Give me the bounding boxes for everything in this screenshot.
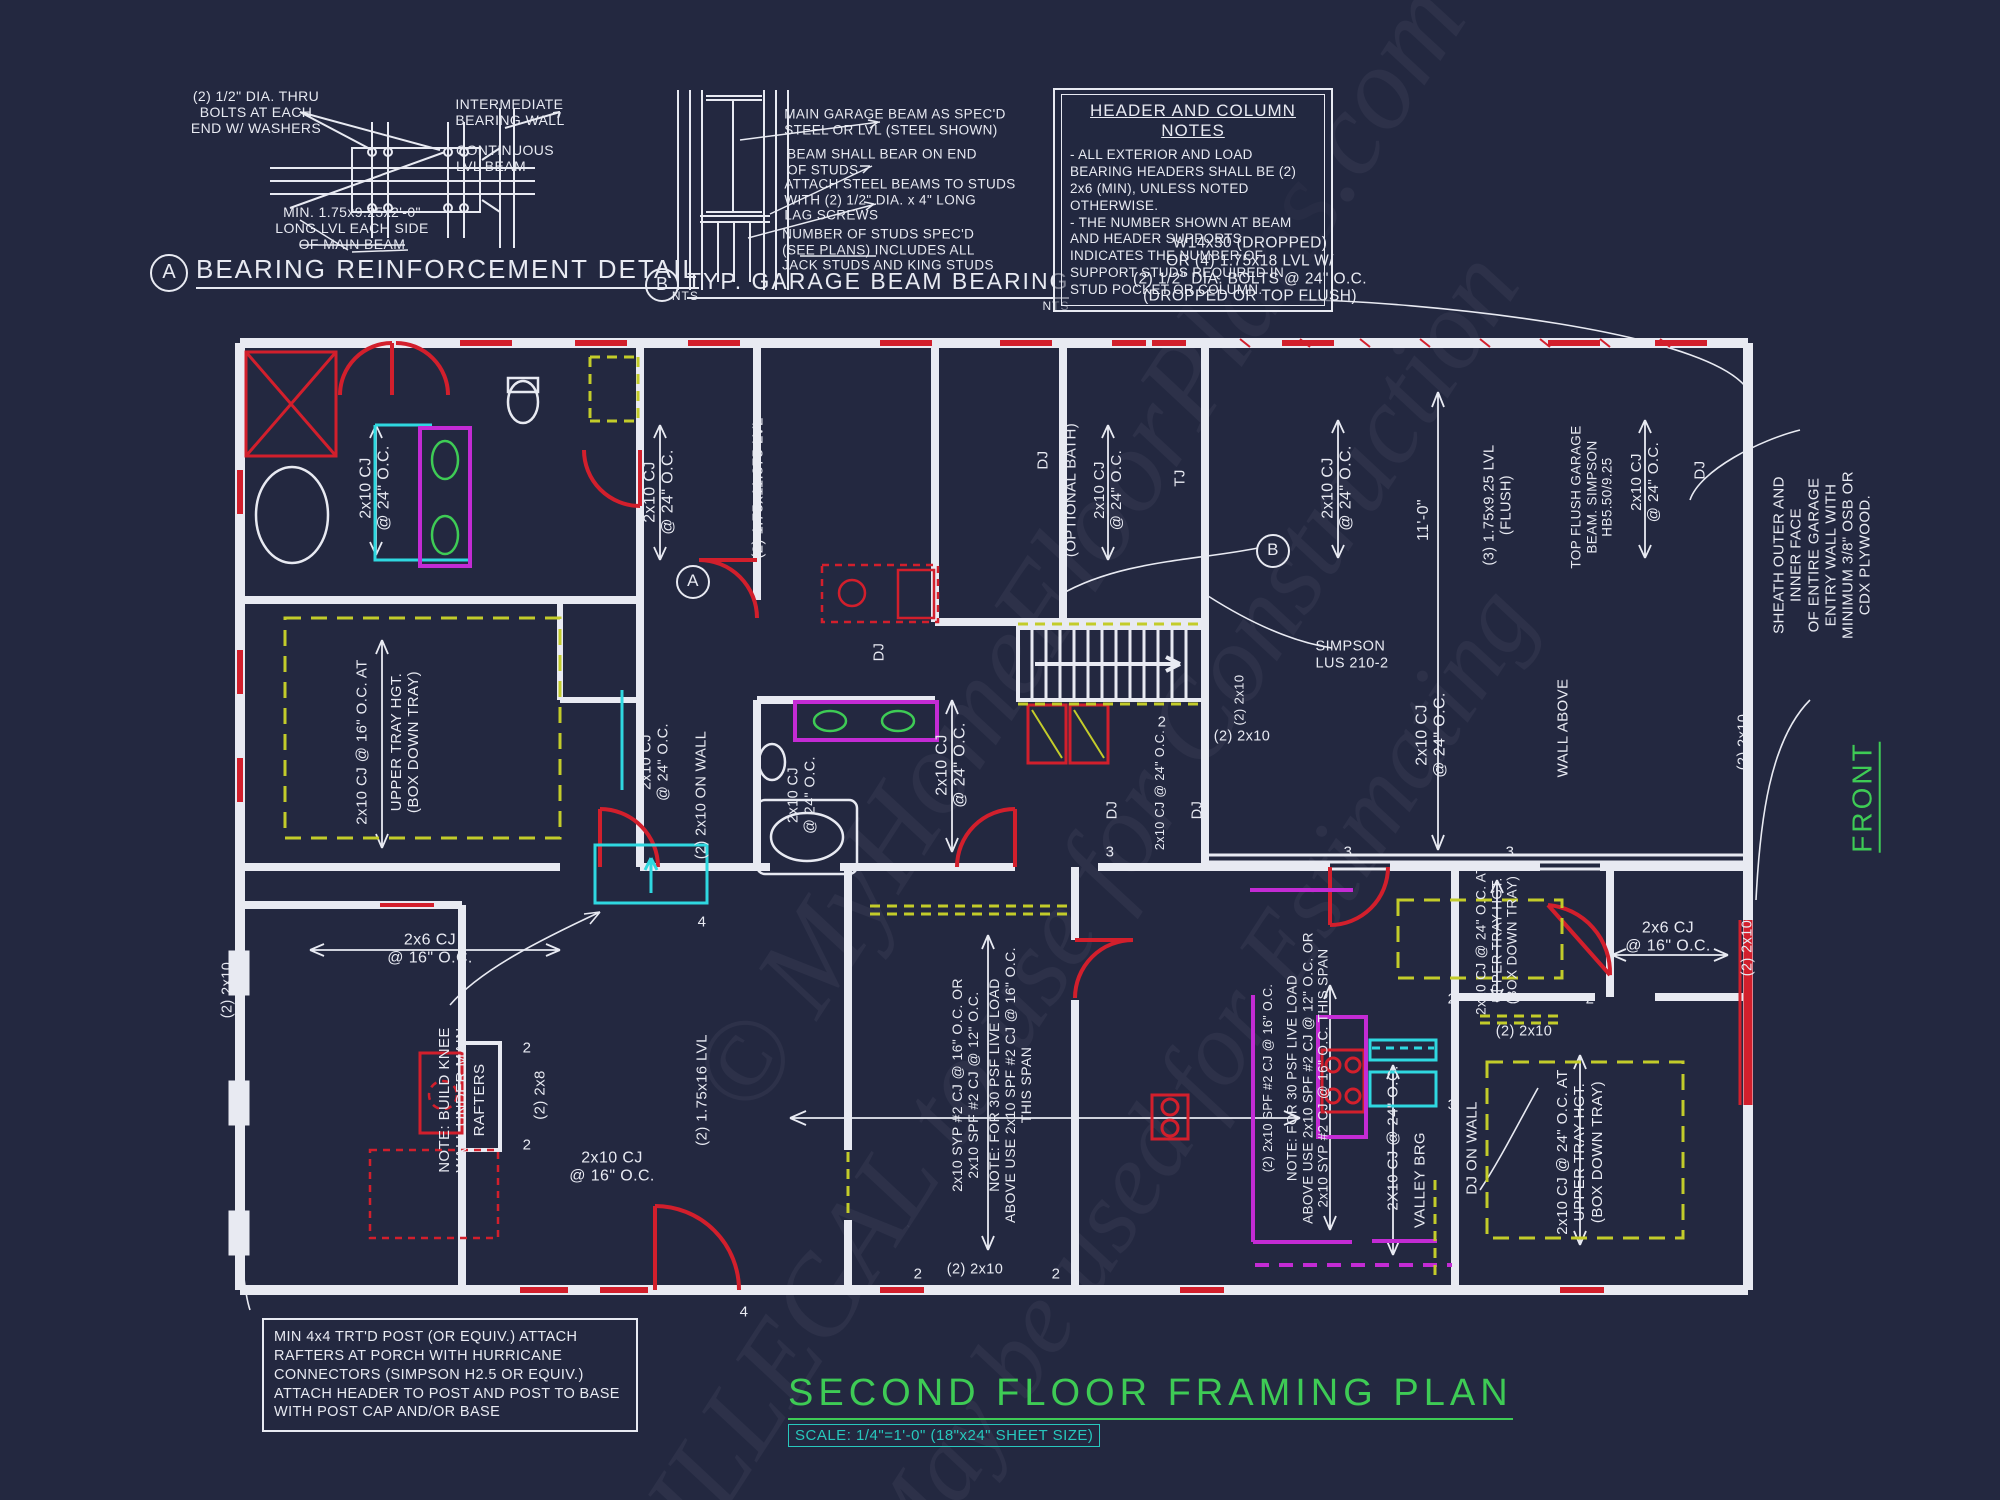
header-column-notes-title: HEADER AND COLUMN NOTES	[1070, 101, 1316, 141]
plan-label: INTERMEDIATE BEARING WALL	[455, 96, 564, 128]
callout-bubble: B	[1256, 534, 1290, 568]
plan-label: (2) 2x10	[1214, 729, 1270, 746]
plan-label: 2	[1448, 990, 1457, 1007]
plan-label: 2x10 CJ @ 24" O.C.	[638, 723, 671, 801]
plan-label: TJ	[1171, 469, 1188, 486]
plan-label: DJ	[1105, 801, 1122, 820]
plan-label: 3	[1106, 843, 1115, 860]
plan-label: (2) 1/2" DIA. THRU BOLTS AT EACH END W/ …	[191, 88, 321, 136]
plan-label: (2) 2x10	[1740, 920, 1757, 976]
detail-b-callout: B	[645, 268, 679, 302]
plan-label: DJ	[1190, 801, 1207, 820]
plan-label: 2	[914, 1265, 923, 1282]
plan-label: 4	[740, 1303, 749, 1320]
header-column-note-item: - ALL EXTERIOR AND LOAD BEARING HEADERS …	[1070, 147, 1316, 215]
plan-label: 2	[523, 1039, 532, 1056]
plan-label: 2	[1052, 1265, 1061, 1282]
callout-bubble: A	[676, 565, 710, 599]
plan-label: 3	[1344, 843, 1353, 860]
plan-label: 2	[523, 1136, 532, 1153]
porch-post-note: MIN 4x4 TRT'D POST (OR EQUIV.) ATTACH RA…	[262, 1318, 638, 1432]
plan-label: 2x10 CJ @ 24" O.C. AT UPPER TRAY HGT. (B…	[1554, 1069, 1606, 1234]
plan-label: (2) 1.75x16 LVL	[693, 1034, 710, 1146]
plan-label: NOTE: FOR 30 PSF LIVE LOAD ABOVE USE 2x1…	[986, 947, 1034, 1223]
plan-label: (3) 1.75x9.25 LVL (FLUSH)	[1481, 445, 1514, 566]
detail-a-title: A BEARING REINFORCEMENT DETAIL NTS	[150, 254, 699, 303]
plan-label: 4	[698, 913, 707, 930]
plan-label: 2x10 CJ @ 16" O.C.	[569, 1150, 655, 1187]
plan-label: UPPER TRAY HGT. (BOX DOWN TRAY)	[388, 671, 423, 813]
plan-label: DJ ON WALL	[1463, 1101, 1480, 1194]
plan-label: NOTE: BUILD KNEE WALL UNDER MAIN RAFTERS	[436, 1027, 488, 1173]
detail-b-scale: NTS	[687, 299, 1069, 313]
plan-label: 3	[1506, 843, 1515, 860]
plan-label: 3	[1448, 1096, 1457, 1113]
plan-label: 2X10 CJ @ 24" O.C.	[1384, 1065, 1401, 1210]
plan-label: 2x10 CJ @ 24" O.C.	[1153, 730, 1167, 850]
plan-label: VALLEY BRG	[1411, 1132, 1428, 1228]
plan-label: 2x10 CJ @ 24" O.C.	[642, 449, 679, 535]
plan-label: (2) 2x10	[947, 1262, 1003, 1279]
plan-label: 11'-0"	[1415, 499, 1433, 541]
plan-label: 2x10 CJ @ 24" O.C.	[358, 445, 395, 531]
plan-label: 2x10 CJ @ 24" O.C. AT UPPER TRAY HGT. (B…	[1474, 865, 1521, 1015]
plan-label: SIMPSON LUS 210-2	[1316, 638, 1389, 671]
plan-label: DJ	[872, 643, 889, 662]
detail-b-title: B TYP. GARAGE BEAM BEARING NTS	[645, 268, 1069, 313]
plan-label: NOTE: FOR 30 PSF LIVE LOAD ABOVE USE 2x1…	[1285, 932, 1332, 1224]
plan-label: DJ	[1034, 450, 1051, 469]
plan-label: WALL ABOVE	[1554, 679, 1571, 778]
plan-label: 2x10 CJ @ 24" O.C.	[1414, 692, 1451, 778]
plan-label: ATTACH STEEL BEAMS TO STUDS WITH (2) 1/2…	[784, 177, 1015, 224]
plan-label: (2) 2x10 ON WALL	[694, 731, 711, 859]
title-block: SECOND FLOOR FRAMING PLAN SCALE: 1/4"=1'…	[788, 1372, 1513, 1447]
plan-label: 2x10 SYP #2 CJ @ 16" O.C. OR 2x10 SPF #2…	[949, 978, 981, 1192]
plan-label: 2x10 CJ @ 16" O.C. AT	[353, 659, 370, 824]
plan-label: CONTINUOUS LVL BEAM	[456, 142, 554, 174]
plan-label: 2x10 CJ @ 24" O.C.	[1320, 445, 1357, 531]
plan-label: DJ	[1691, 460, 1708, 479]
detail-a-title-text: BEARING REINFORCEMENT DETAIL	[196, 254, 699, 289]
plan-label: W14x30 (DROPPED) OR (4) 1.75x18 LVL W/ (…	[1133, 234, 1367, 305]
plan-label: NUMBER OF STUDS SPEC'D (SEE PLANS) INCLU…	[782, 227, 994, 274]
page-title: SECOND FLOOR FRAMING PLAN	[788, 1372, 1513, 1420]
detail-a-scale: NTS	[196, 289, 699, 303]
detail-a-callout: A	[150, 254, 188, 292]
front-label: FRONT	[1847, 741, 1881, 852]
plan-label: 2x10 CJ @ 24" O.C.	[785, 756, 818, 834]
plan-label: 2	[1158, 713, 1167, 730]
plan-label: MIN. 1.75x9.25x2'-0" LONG LVL EACH SIDE …	[275, 204, 428, 252]
plan-label: (2) 2x10	[1496, 1024, 1552, 1041]
plan-label: (2) 2x10	[1233, 675, 1248, 726]
plan-label: (2) 2x10	[220, 962, 237, 1018]
blueprint-sheet: © MyHomeFloorPlans.com ILLEGAL to use fo…	[0, 0, 2000, 1500]
plan-label: MAIN GARAGE BEAM AS SPEC'D STEEL OR LVL …	[784, 106, 1006, 137]
plan-label: 2x6 CJ @ 16" O.C.	[387, 932, 473, 969]
plan-label: 2x10 CJ @ 24" O.C.	[1091, 450, 1126, 530]
plan-label: BEAM SHALL BEAR ON END OF STUDS	[787, 146, 977, 177]
plan-label: (2) 2x10 SPF #2 CJ @ 16" O.C.	[1261, 984, 1275, 1173]
scale-note: SCALE: 1/4"=1'-0" (18"x24" SHEET SIZE)	[788, 1424, 1100, 1447]
plan-label: (2) 2x10	[1736, 714, 1753, 770]
plan-label: TOP FLUSH GARAGE BEAM. SIMPSON HB5.50/9.…	[1569, 425, 1616, 568]
plan-label: 2x6 CJ @ 16" O.C.	[1625, 920, 1711, 957]
plan-label: (2) 2x8	[531, 1070, 548, 1120]
plan-label: 2x10 CJ @ 24" O.C.	[1628, 442, 1663, 522]
plan-label: 2x10 CJ @ 24" O.C.	[934, 722, 971, 808]
plan-label: 2	[1586, 990, 1595, 1007]
plan-label: SHEATH OUTER AND INNER FACE OF ENTIRE GA…	[1770, 466, 1874, 644]
plan-label: (2) 1.75x11.875 LVL	[749, 417, 766, 558]
plan-label: (OPTIONAL BATH)	[1062, 423, 1079, 557]
